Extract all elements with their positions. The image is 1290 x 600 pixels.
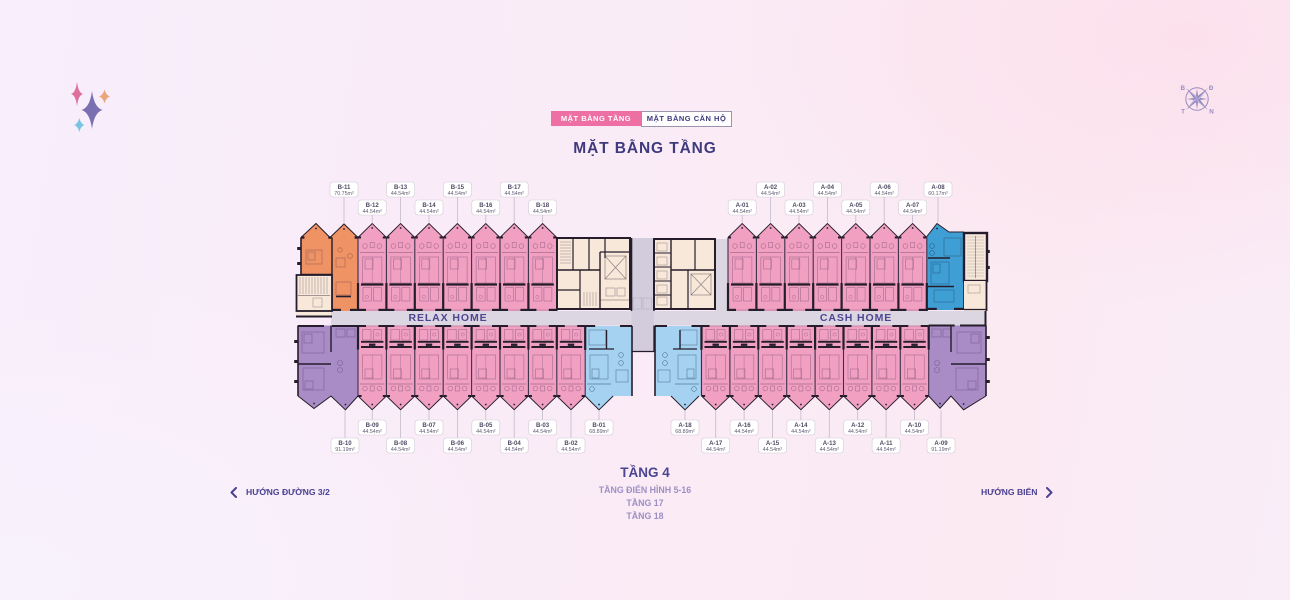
svg-text:68.89m²: 68.89m² — [675, 429, 695, 435]
svg-text:B-15: B-15 — [451, 184, 465, 191]
svg-text:44.54m²: 44.54m² — [903, 209, 923, 215]
svg-text:A-11: A-11 — [880, 440, 893, 447]
svg-text:B-04: B-04 — [508, 440, 522, 447]
svg-text:B-01: B-01 — [592, 422, 606, 429]
svg-text:A-08: A-08 — [931, 184, 945, 191]
svg-text:A-07: A-07 — [906, 202, 920, 209]
svg-text:44.54m²: 44.54m² — [448, 191, 468, 197]
svg-text:B-16: B-16 — [479, 202, 493, 209]
svg-text:91.19m²: 91.19m² — [931, 447, 951, 453]
svg-text:44.54m²: 44.54m² — [476, 209, 496, 215]
svg-text:B-06: B-06 — [451, 440, 465, 447]
svg-text:A-13: A-13 — [823, 440, 837, 447]
svg-text:B-02: B-02 — [564, 440, 578, 447]
svg-text:44.54m²: 44.54m² — [419, 209, 439, 215]
svg-text:44.54m²: 44.54m² — [818, 191, 838, 197]
svg-text:A-03: A-03 — [792, 202, 806, 209]
svg-text:44.54m²: 44.54m² — [533, 429, 553, 435]
svg-text:68.89m²: 68.89m² — [589, 429, 609, 435]
svg-text:CASH HOME: CASH HOME — [820, 312, 892, 324]
svg-text:70.75m²: 70.75m² — [334, 191, 354, 197]
svg-text:44.54m²: 44.54m² — [761, 191, 781, 197]
svg-text:60.17m²: 60.17m² — [928, 191, 948, 197]
svg-text:A-15: A-15 — [766, 440, 780, 447]
svg-text:A-01: A-01 — [736, 202, 750, 209]
svg-text:44.54m²: 44.54m² — [734, 429, 754, 435]
svg-text:44.54m²: 44.54m² — [362, 429, 382, 435]
svg-text:B-18: B-18 — [536, 202, 550, 209]
svg-text:A-17: A-17 — [709, 440, 723, 447]
svg-text:44.54m²: 44.54m² — [448, 447, 468, 453]
svg-text:91.19m²: 91.19m² — [335, 447, 355, 453]
svg-text:44.54m²: 44.54m² — [391, 447, 411, 453]
svg-text:44.54m²: 44.54m² — [561, 447, 581, 453]
svg-text:B-08: B-08 — [394, 440, 408, 447]
svg-text:B-12: B-12 — [366, 202, 380, 209]
svg-text:44.54m²: 44.54m² — [820, 447, 840, 453]
svg-text:B-13: B-13 — [394, 184, 408, 191]
svg-text:B-14: B-14 — [422, 202, 436, 209]
svg-text:B-05: B-05 — [479, 422, 493, 429]
svg-text:A-12: A-12 — [851, 422, 865, 429]
svg-text:A-05: A-05 — [849, 202, 863, 209]
svg-text:44.54m²: 44.54m² — [905, 429, 925, 435]
svg-text:44.54m²: 44.54m² — [732, 209, 752, 215]
svg-text:44.54m²: 44.54m² — [876, 447, 896, 453]
svg-text:B-10: B-10 — [338, 440, 352, 447]
svg-text:B-07: B-07 — [422, 422, 436, 429]
svg-text:44.54m²: 44.54m² — [874, 191, 894, 197]
svg-text:44.54m²: 44.54m² — [391, 191, 411, 197]
svg-text:A-10: A-10 — [908, 422, 922, 429]
svg-text:44.54m²: 44.54m² — [763, 447, 783, 453]
svg-text:A-14: A-14 — [794, 422, 808, 429]
svg-text:A-09: A-09 — [934, 440, 948, 447]
svg-text:44.54m²: 44.54m² — [362, 209, 382, 215]
svg-text:A-04: A-04 — [821, 184, 835, 191]
svg-text:A-18: A-18 — [678, 422, 692, 429]
svg-text:B-11: B-11 — [338, 184, 351, 191]
svg-text:A-02: A-02 — [764, 184, 778, 191]
svg-text:44.54m²: 44.54m² — [706, 447, 726, 453]
svg-text:44.54m²: 44.54m² — [533, 209, 553, 215]
svg-text:A-16: A-16 — [737, 422, 751, 429]
svg-text:44.54m²: 44.54m² — [504, 447, 524, 453]
svg-text:44.54m²: 44.54m² — [789, 209, 809, 215]
svg-text:RELAX HOME: RELAX HOME — [408, 312, 487, 324]
svg-text:44.54m²: 44.54m² — [848, 429, 868, 435]
svg-text:44.54m²: 44.54m² — [846, 209, 866, 215]
svg-text:44.54m²: 44.54m² — [419, 429, 439, 435]
svg-text:B-03: B-03 — [536, 422, 550, 429]
svg-text:44.54m²: 44.54m² — [791, 429, 811, 435]
svg-text:44.54m²: 44.54m² — [476, 429, 496, 435]
svg-text:B-17: B-17 — [508, 184, 522, 191]
svg-text:A-06: A-06 — [878, 184, 892, 191]
svg-text:44.54m²: 44.54m² — [504, 191, 524, 197]
svg-text:B-09: B-09 — [366, 422, 380, 429]
